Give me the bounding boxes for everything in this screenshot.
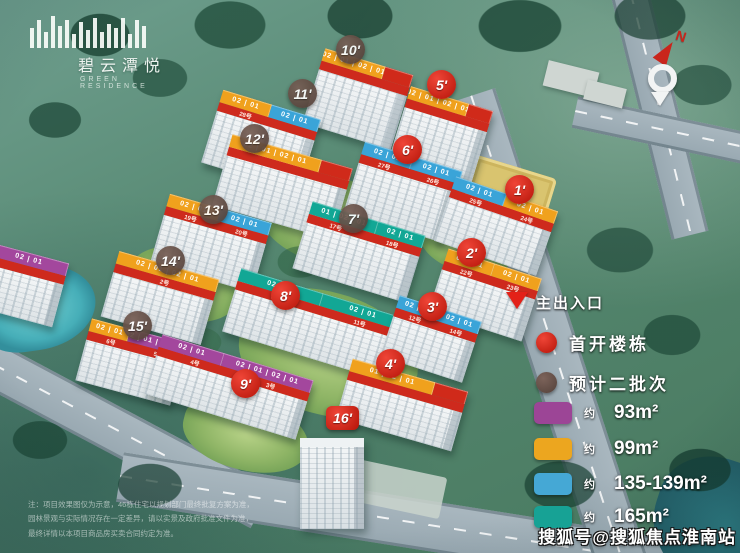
north-label: N bbox=[674, 27, 689, 45]
disclaimer: 注：项目效果图仅为示意，46栋住宅以规划部门最终批复方案为准， 园林景观与实际情… bbox=[28, 498, 268, 541]
size-label: 93m² bbox=[614, 402, 658, 424]
blue-swatch bbox=[534, 473, 572, 495]
building-label-3: 3' bbox=[418, 292, 447, 321]
approx-label: 约 bbox=[584, 405, 598, 421]
approx-label: 约 bbox=[584, 441, 598, 457]
site-plan: 02 | 01 | 02 | 01 02 | 01 | 02 | 01 02 |… bbox=[0, 0, 740, 553]
building-label-16: 16' bbox=[326, 406, 359, 430]
building-label-1: 1' bbox=[505, 175, 534, 204]
building-label-8: 8' bbox=[271, 281, 300, 310]
legend-first-open: 首开楼栋 bbox=[536, 330, 649, 355]
disclaimer-line: 园林景观与实际情况存在一定差异，请以实景及政府批准文件为准， bbox=[28, 512, 268, 526]
legend-unit-135-139: 约 135-139m² bbox=[534, 473, 707, 495]
orange-swatch bbox=[534, 438, 572, 460]
building-label-11: 11' bbox=[288, 79, 317, 108]
legend-second-batch: 预计二批次 bbox=[536, 370, 669, 395]
compass-tail-icon bbox=[651, 92, 669, 106]
building-label-13: 13' bbox=[199, 195, 228, 224]
building-label-7: 7' bbox=[339, 204, 368, 233]
building-label-9: 9' bbox=[231, 369, 260, 398]
building-tower-16 bbox=[300, 438, 364, 529]
building-label-2: 2' bbox=[457, 238, 486, 267]
approx-label: 约 bbox=[584, 476, 598, 492]
disclaimer-line: 注：项目效果图仅为示意，46栋住宅以规划部门最终批复方案为准， bbox=[28, 498, 268, 512]
legend-label: 首开楼栋 bbox=[569, 330, 649, 355]
size-label: 135-139m² bbox=[614, 473, 707, 495]
project-logo: 碧云潭悦 GREEN RESIDENCE bbox=[30, 12, 180, 90]
legend-label: 预计二批次 bbox=[569, 370, 669, 395]
sohu-watermark: 搜狐号@搜狐焦点淮南站 bbox=[538, 523, 736, 548]
building-label-5: 5' bbox=[427, 70, 456, 99]
project-name: 碧云潭悦 bbox=[78, 52, 180, 76]
main-entrance-marker: 主出入口 bbox=[506, 292, 604, 313]
legend-unit-93: 约 93m² bbox=[534, 402, 658, 424]
legend-unit-99: 约 99m² bbox=[534, 438, 658, 460]
entrance-label: 主出入口 bbox=[536, 292, 604, 313]
building-label-14: 14' bbox=[156, 246, 185, 275]
building-label-6: 6' bbox=[393, 135, 422, 164]
compass: N bbox=[636, 28, 706, 103]
disclaimer-line: 最终详情以本项目商品房买卖合同约定为准。 bbox=[28, 527, 268, 541]
purple-swatch bbox=[534, 402, 572, 424]
project-name-en: GREEN RESIDENCE bbox=[80, 76, 180, 90]
red-dot-icon bbox=[536, 332, 557, 353]
building-label-12: 12' bbox=[240, 124, 269, 153]
entrance-triangle-icon bbox=[506, 292, 528, 309]
building-label-10: 10' bbox=[336, 35, 365, 64]
building-label-4: 4' bbox=[376, 349, 405, 378]
building-label-15: 15' bbox=[123, 311, 152, 340]
brown-dot-icon bbox=[536, 372, 557, 393]
size-label: 99m² bbox=[614, 438, 658, 460]
compass-ring-icon bbox=[648, 64, 677, 93]
skyline-bars-icon bbox=[30, 12, 180, 48]
